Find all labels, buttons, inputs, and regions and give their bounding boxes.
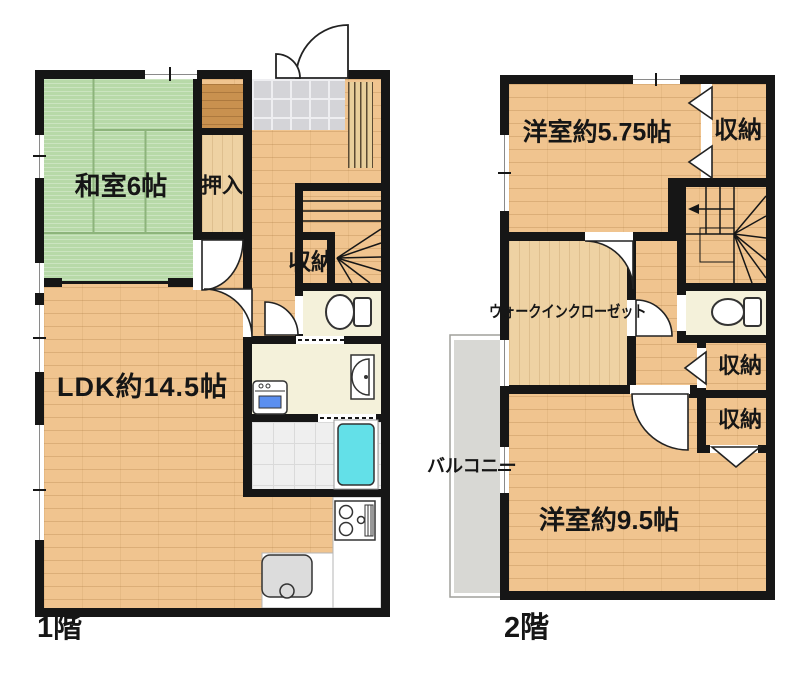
floor1-openings [35, 70, 376, 540]
label-bedroom-small: 洋室約5.75帖 [523, 121, 672, 146]
stairs-2f [686, 187, 766, 283]
label-closet-2f-mid: 収納 [718, 355, 762, 377]
washing-machine-icon [253, 381, 287, 414]
label-wic: ウォークインクローゼット [489, 305, 646, 321]
label-oshiire: 押入 [201, 176, 243, 197]
label-closet-1f: 収納 [288, 251, 334, 274]
label-balcony: バルコニー [427, 457, 517, 475]
plan-geometry [0, 0, 800, 673]
toilet-icon-2f [712, 298, 761, 326]
bathtub-icon [334, 420, 378, 489]
tatami-grid [44, 79, 193, 233]
label-floor1: 1階 [37, 614, 82, 643]
stove-icon [335, 501, 375, 540]
stairs-down-arrow [688, 204, 699, 214]
label-ldk: LDK約14.5帖 [57, 374, 228, 401]
window-glass-lines [40, 75, 198, 541]
label-washitsu: 和室6帖 [75, 173, 167, 199]
label-closet-2f-low: 収納 [718, 409, 762, 431]
label-closet-2f-top: 収納 [714, 119, 762, 143]
entrance-door-icon [276, 25, 348, 78]
label-floor2: 2階 [504, 614, 549, 643]
floor-plan: 和室6帖 押入 収納 LDK約14.5帖 1階 洋室約5.75帖 収納 ウォーク… [0, 0, 800, 673]
label-bedroom-large: 洋室約9.5帖 [539, 507, 679, 533]
toilet-icon-1f [326, 295, 371, 329]
floor2-door-arcs [585, 241, 688, 450]
kitchen-sink-icon [262, 555, 312, 598]
washbasin-icon [351, 355, 374, 399]
